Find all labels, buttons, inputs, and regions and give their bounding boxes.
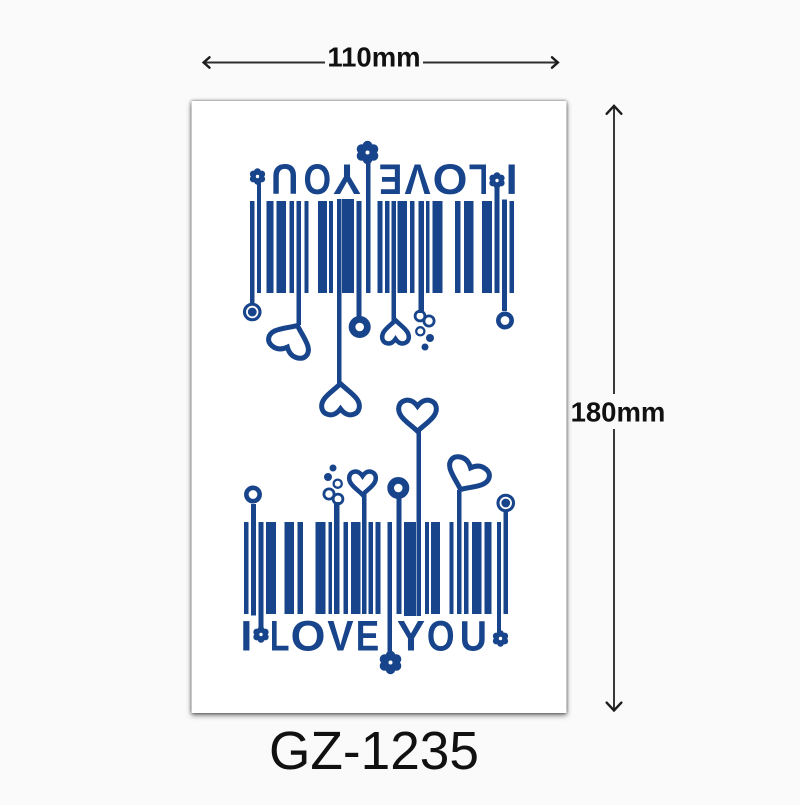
svg-text:180mm: 180mm <box>571 397 666 428</box>
svg-text:110mm: 110mm <box>327 42 420 73</box>
svg-text:E: E <box>356 613 379 661</box>
svg-text:O: O <box>427 613 455 661</box>
svg-text:GZ-1235: GZ-1235 <box>269 721 479 781</box>
svg-text:V: V <box>327 613 353 661</box>
svg-text:L: L <box>270 613 290 661</box>
svg-text:O: O <box>291 613 326 661</box>
svg-text:U: U <box>460 613 487 661</box>
svg-text:I: I <box>240 613 252 661</box>
svg-text:Y: Y <box>397 613 425 661</box>
